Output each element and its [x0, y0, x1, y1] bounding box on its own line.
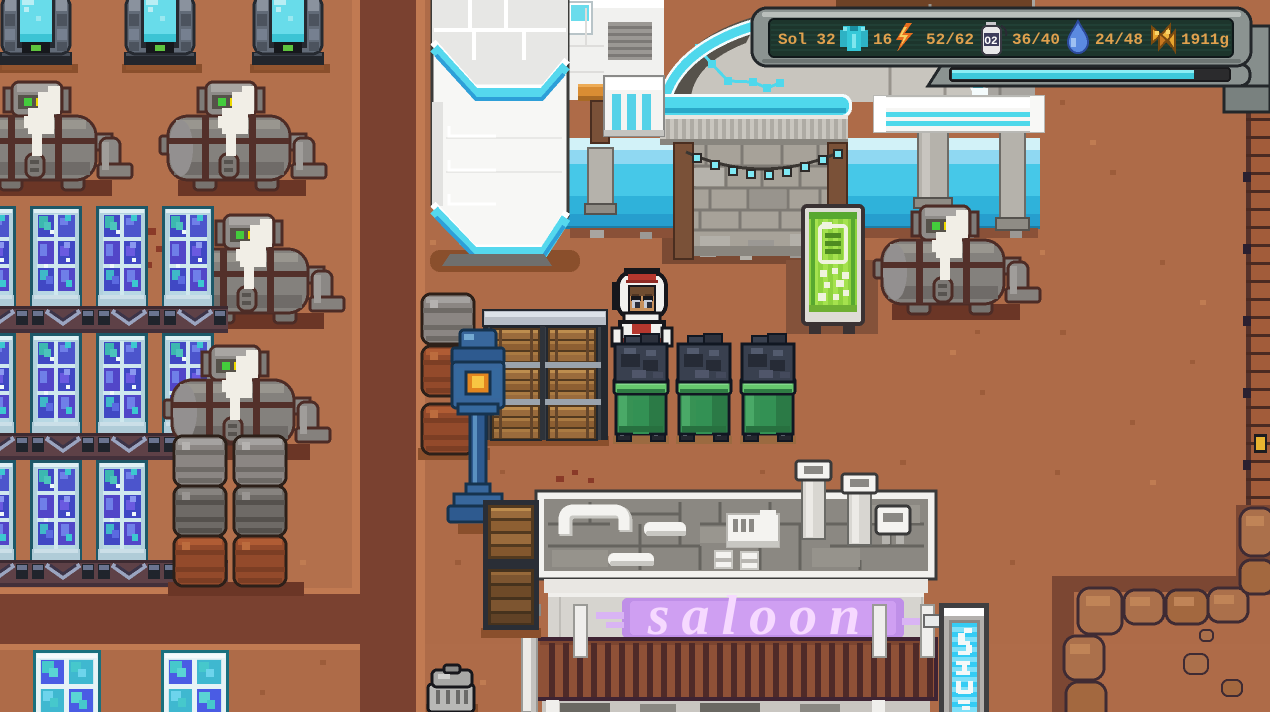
svg-text:52/62: 52/62 — [926, 31, 974, 49]
svg-text:Sol 32: Sol 32 — [778, 31, 836, 49]
svg-text:24/48: 24/48 — [1095, 31, 1143, 49]
svg-text:16: 16 — [873, 31, 892, 49]
svg-text:1911g: 1911g — [1181, 31, 1229, 49]
svg-text:36/40: 36/40 — [1012, 31, 1060, 49]
svg-text:O2: O2 — [984, 36, 997, 48]
